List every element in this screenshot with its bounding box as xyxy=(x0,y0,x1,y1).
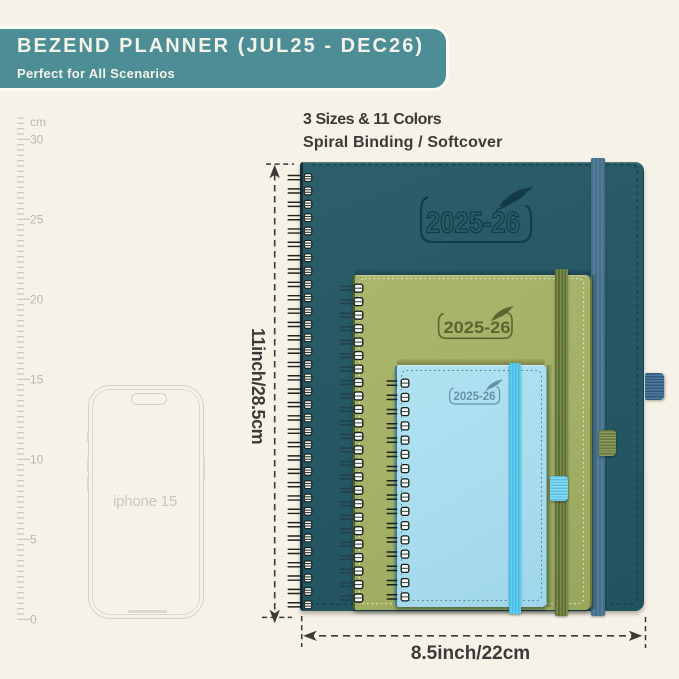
svg-text:2025-26: 2025-26 xyxy=(426,207,520,240)
svg-text:cm: cm xyxy=(30,115,46,129)
svg-text:2025-26: 2025-26 xyxy=(444,319,511,337)
svg-text:10: 10 xyxy=(30,453,44,467)
svg-text:20: 20 xyxy=(30,293,44,307)
svg-text:5: 5 xyxy=(30,533,37,547)
svg-text:2025-26: 2025-26 xyxy=(454,389,496,403)
svg-text:0: 0 xyxy=(30,613,37,627)
svg-text:15: 15 xyxy=(30,373,44,387)
svg-text:25: 25 xyxy=(30,213,44,227)
svg-text:30: 30 xyxy=(30,133,44,147)
